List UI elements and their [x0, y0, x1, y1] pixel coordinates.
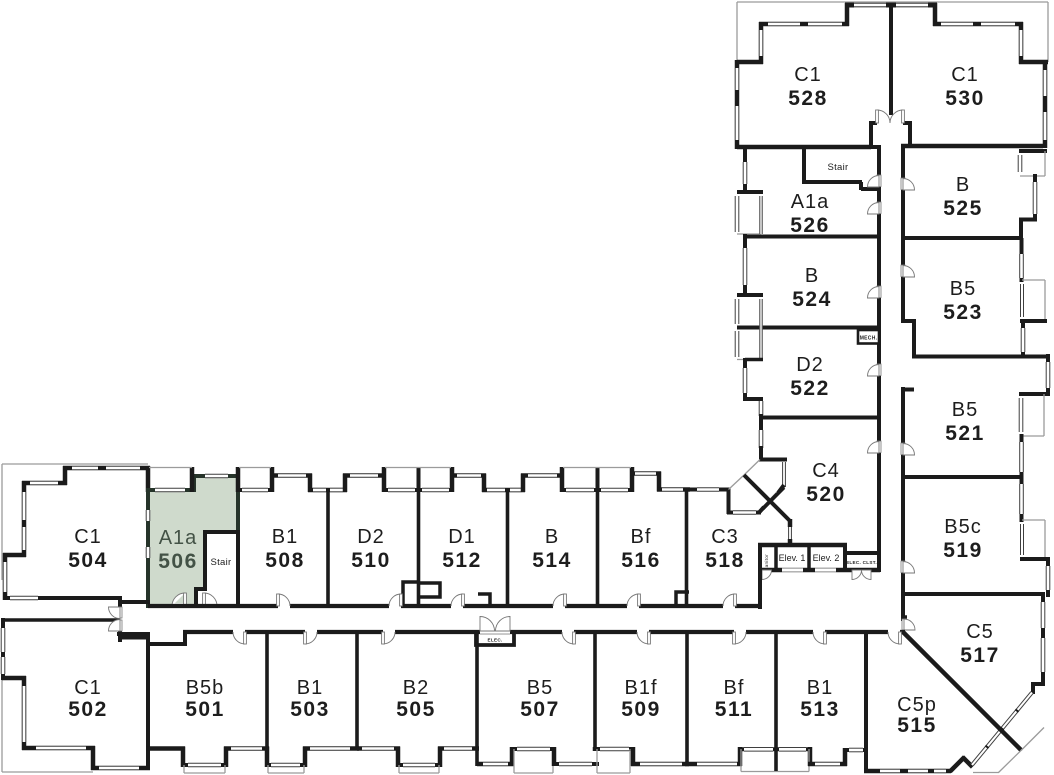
- svg-text:C1: C1: [74, 526, 102, 548]
- svg-text:509: 509: [621, 698, 661, 721]
- svg-text:514: 514: [532, 549, 572, 572]
- svg-text:526: 526: [790, 214, 830, 237]
- svg-text:B5: B5: [950, 278, 976, 300]
- svg-text:B: B: [956, 174, 970, 196]
- svg-text:511: 511: [715, 698, 753, 721]
- svg-text:B1: B1: [297, 677, 323, 699]
- svg-text:507: 507: [520, 698, 560, 721]
- svg-text:522: 522: [790, 377, 830, 400]
- svg-text:C4: C4: [812, 460, 840, 482]
- svg-text:B5: B5: [527, 677, 553, 699]
- svg-text:C5p: C5p: [897, 694, 937, 716]
- svg-text:528: 528: [788, 87, 828, 110]
- svg-text:521: 521: [945, 422, 985, 445]
- svg-text:516: 516: [621, 549, 661, 572]
- svg-text:Bf: Bf: [631, 526, 652, 548]
- svg-text:B: B: [545, 526, 559, 548]
- svg-text:Stair: Stair: [210, 557, 231, 568]
- svg-text:517: 517: [960, 644, 1000, 667]
- svg-text:B1: B1: [807, 677, 833, 699]
- svg-text:B1: B1: [272, 526, 298, 548]
- svg-text:Elev. 1: Elev. 1: [779, 553, 806, 563]
- svg-text:B5b: B5b: [186, 677, 225, 699]
- svg-text:505: 505: [396, 698, 436, 721]
- svg-text:C5: C5: [966, 621, 994, 643]
- svg-text:518: 518: [705, 549, 745, 572]
- svg-text:504: 504: [68, 549, 108, 572]
- svg-text:ELEC.: ELEC.: [487, 638, 502, 643]
- svg-text:B1f: B1f: [624, 677, 657, 699]
- svg-text:501: 501: [185, 698, 225, 721]
- svg-text:530: 530: [945, 87, 985, 110]
- svg-text:A1a: A1a: [159, 527, 198, 549]
- svg-text:512: 512: [442, 549, 482, 572]
- svg-text:503: 503: [290, 698, 330, 721]
- svg-text:B5c: B5c: [944, 516, 981, 538]
- svg-text:C3: C3: [711, 526, 739, 548]
- svg-text:Bf: Bf: [724, 677, 745, 699]
- svg-text:B2: B2: [403, 677, 429, 699]
- svg-text:506: 506: [158, 550, 198, 573]
- svg-text:Stair: Stair: [827, 162, 848, 173]
- svg-text:B: B: [805, 265, 819, 287]
- svg-text:D2: D2: [796, 354, 824, 376]
- svg-text:MECH.: MECH.: [860, 336, 878, 342]
- svg-text:524: 524: [792, 288, 832, 311]
- svg-text:519: 519: [943, 539, 983, 562]
- svg-text:510: 510: [351, 549, 391, 572]
- svg-text:523: 523: [943, 301, 983, 324]
- svg-text:520: 520: [806, 483, 846, 506]
- svg-text:D2: D2: [357, 526, 385, 548]
- svg-text:C1: C1: [951, 64, 979, 86]
- svg-text:D1: D1: [448, 526, 476, 548]
- svg-text:B5: B5: [952, 399, 978, 421]
- svg-text:Janitor: Janitor: [764, 554, 769, 570]
- svg-text:ELEC. CLST.: ELEC. CLST.: [846, 560, 877, 565]
- svg-text:513: 513: [800, 698, 840, 721]
- svg-text:508: 508: [265, 549, 305, 572]
- svg-text:Elev. 2: Elev. 2: [813, 553, 840, 563]
- svg-text:A1a: A1a: [791, 191, 830, 213]
- svg-text:515: 515: [897, 714, 937, 737]
- svg-text:525: 525: [943, 197, 983, 220]
- svg-text:C1: C1: [74, 677, 102, 699]
- svg-text:C1: C1: [794, 64, 822, 86]
- svg-text:502: 502: [68, 698, 108, 721]
